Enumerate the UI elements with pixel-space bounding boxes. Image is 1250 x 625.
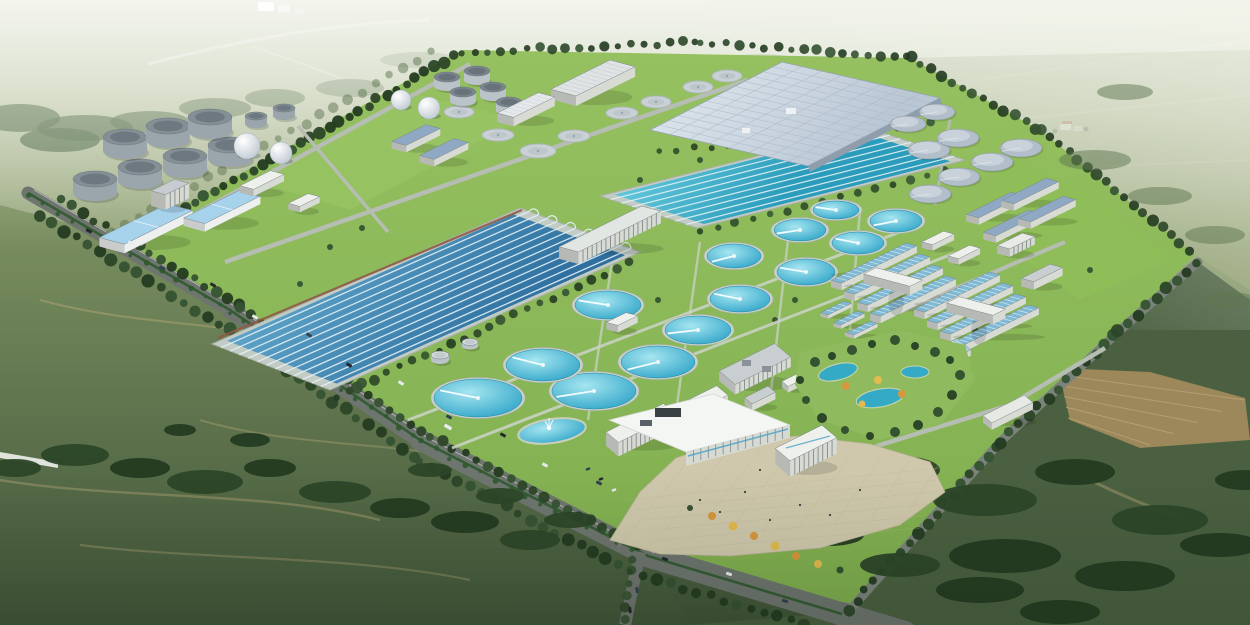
tree-icon xyxy=(275,135,282,142)
tree-clump xyxy=(1059,150,1131,170)
tree-icon xyxy=(734,40,744,50)
tree-icon xyxy=(641,41,648,48)
tree-icon xyxy=(851,50,859,58)
tree-clump xyxy=(1097,84,1153,100)
tree-icon xyxy=(327,244,333,250)
tree-icon xyxy=(57,195,65,203)
storage-tank xyxy=(273,104,297,122)
clarifier-hub xyxy=(738,297,742,301)
tree-icon xyxy=(524,305,531,312)
tree-icon xyxy=(524,45,531,52)
median-bush-icon xyxy=(369,405,374,410)
tree-icon xyxy=(774,42,784,52)
tree-icon xyxy=(177,268,189,280)
tree-icon xyxy=(1167,230,1176,239)
tree-icon xyxy=(180,299,188,307)
tree-icon xyxy=(222,293,234,305)
tree-icon xyxy=(1111,324,1124,337)
tree-icon xyxy=(240,172,248,180)
sphere-body xyxy=(234,133,260,159)
clarifier-hub xyxy=(696,328,700,332)
tank-top-inner xyxy=(468,68,486,75)
tree-icon xyxy=(211,286,223,298)
tree-icon xyxy=(1023,117,1031,125)
tree-icon xyxy=(73,232,81,240)
tree-icon xyxy=(359,225,365,231)
tree-icon xyxy=(1087,267,1093,273)
tree-icon xyxy=(165,290,177,302)
tree-icon xyxy=(1004,427,1013,436)
tree-icon xyxy=(1046,133,1055,142)
tree-icon xyxy=(141,274,154,287)
tree-icon xyxy=(838,49,847,58)
tank-top-inner xyxy=(153,121,183,132)
garden-pond xyxy=(901,366,929,378)
tree-icon xyxy=(191,274,198,281)
tree-icon xyxy=(1182,268,1192,278)
tree-icon xyxy=(34,210,46,222)
tree-icon xyxy=(376,427,387,438)
tree-icon xyxy=(119,261,130,272)
flat-tank-hub xyxy=(726,75,728,77)
rendering-stage xyxy=(0,0,1250,625)
open-clarifier xyxy=(829,230,887,255)
tree-icon xyxy=(1140,300,1150,310)
sphere-body xyxy=(270,142,292,164)
flat-covered-tank xyxy=(444,106,474,118)
tree-icon xyxy=(1147,215,1159,227)
tank-top-inner xyxy=(438,74,456,81)
tree-icon xyxy=(575,44,583,52)
tree-icon xyxy=(446,339,456,349)
tree-icon xyxy=(547,44,557,54)
tree-icon xyxy=(426,433,434,441)
garden-tree-icon xyxy=(842,382,850,390)
tree-icon xyxy=(995,437,1007,449)
tree-icon xyxy=(916,61,923,68)
tree-icon xyxy=(398,63,409,74)
tree-icon xyxy=(760,45,768,53)
tree-icon xyxy=(1158,221,1168,231)
tree-icon xyxy=(362,418,374,430)
tree-icon xyxy=(462,449,470,457)
median-bush-icon xyxy=(26,193,31,198)
tree-icon xyxy=(989,101,998,110)
tree-icon xyxy=(871,184,880,193)
tree-icon xyxy=(697,228,703,234)
tree-icon xyxy=(156,255,166,265)
tree-icon xyxy=(509,48,516,55)
tree-icon xyxy=(484,49,490,55)
tree-icon xyxy=(574,282,583,291)
clarifier-hub xyxy=(541,363,545,367)
median-bush-icon xyxy=(339,388,343,392)
median-bush-icon xyxy=(70,220,74,224)
clarifier-hub xyxy=(894,219,898,223)
garden-tree-icon xyxy=(913,420,923,430)
tree-icon xyxy=(715,225,721,231)
tree-icon xyxy=(249,167,258,176)
flat-covered-tank xyxy=(482,129,514,141)
tree-icon xyxy=(959,85,966,92)
tree-icon xyxy=(167,262,177,272)
tree-icon xyxy=(407,420,416,429)
tree-icon xyxy=(890,181,897,188)
garden-tree-icon xyxy=(796,376,804,384)
garden-tree-icon xyxy=(933,407,943,417)
tree-icon xyxy=(666,38,675,47)
storage-tank xyxy=(73,171,119,203)
tree-icon xyxy=(198,190,209,201)
sphere-body xyxy=(391,90,411,110)
tree-icon xyxy=(825,47,836,58)
open-clarifier xyxy=(774,257,838,286)
storage-tank xyxy=(450,87,478,108)
tree-icon xyxy=(1062,375,1070,383)
tank-top-inner xyxy=(454,89,472,96)
open-clarifier xyxy=(618,344,698,379)
tree-icon xyxy=(57,225,70,238)
tree-icon xyxy=(396,443,409,456)
open-clarifier xyxy=(704,242,764,269)
tree-icon xyxy=(612,264,622,274)
tree-icon xyxy=(202,311,213,322)
tree-icon xyxy=(767,211,773,217)
median-bush-icon xyxy=(418,438,423,443)
flat-tank-hub xyxy=(497,134,499,136)
tree-icon xyxy=(1133,310,1145,322)
tree-icon xyxy=(865,52,872,59)
rooftop-unit xyxy=(742,128,750,133)
tree-icon xyxy=(365,102,374,111)
tank-top-inner xyxy=(195,112,225,123)
tree-icon xyxy=(386,406,394,414)
storage-tank xyxy=(118,159,164,191)
flat-covered-tank xyxy=(520,144,556,158)
tree-icon xyxy=(314,109,324,119)
flat-tank-hub xyxy=(655,101,657,103)
median-bush-icon xyxy=(434,446,439,451)
tank-top-inner xyxy=(125,162,155,173)
tree-icon xyxy=(811,44,821,54)
tree-icon xyxy=(656,148,662,154)
tree-icon xyxy=(190,182,199,191)
open-clarifier xyxy=(431,377,525,418)
storage-tank xyxy=(188,109,234,141)
tree-icon xyxy=(328,102,339,113)
tree-icon xyxy=(799,44,809,54)
tree-icon xyxy=(1036,124,1047,135)
clarifier-hub xyxy=(856,241,860,245)
open-clarifier xyxy=(810,199,862,220)
tree-icon xyxy=(615,43,621,49)
tank-top-inner xyxy=(434,352,446,357)
flat-tank-hub xyxy=(537,150,539,152)
garden-tree-icon xyxy=(802,396,810,404)
tree-icon xyxy=(67,200,77,210)
tree-icon xyxy=(313,127,326,140)
tree-icon xyxy=(449,50,459,60)
tree-icon xyxy=(792,297,798,303)
atmospheric-haze-near xyxy=(0,470,1250,625)
tree-icon xyxy=(416,426,426,436)
garden-tree-icon xyxy=(859,401,866,408)
clarifier-hub xyxy=(592,389,596,393)
tree-icon xyxy=(215,321,223,329)
tree-icon xyxy=(287,127,295,135)
tree-icon xyxy=(691,143,698,150)
tree-icon xyxy=(948,79,956,87)
tree-icon xyxy=(346,113,354,121)
open-clarifier xyxy=(662,314,734,345)
flat-covered-tank xyxy=(712,70,742,82)
tree-icon xyxy=(496,47,505,56)
tree-icon xyxy=(974,461,984,471)
tree-icon xyxy=(509,309,518,318)
tree-icon xyxy=(473,329,481,337)
tank-top-inner xyxy=(277,105,292,110)
tree-icon xyxy=(750,216,756,222)
tree-icon xyxy=(332,115,344,127)
tree-icon xyxy=(788,47,794,53)
tree-clump xyxy=(230,433,270,447)
tree-icon xyxy=(157,283,166,292)
tree-icon xyxy=(472,49,479,56)
tree-icon xyxy=(189,306,200,317)
median-bush-icon xyxy=(128,254,132,258)
tree-icon xyxy=(1192,259,1201,268)
tree-icon xyxy=(1102,177,1111,186)
tree-icon xyxy=(967,88,977,98)
tree-icon xyxy=(891,52,899,60)
tree-icon xyxy=(655,297,661,303)
tree-icon xyxy=(697,157,703,163)
tree-icon xyxy=(191,199,199,207)
garden-tree-icon xyxy=(890,335,900,345)
tree-icon xyxy=(383,369,390,376)
tree-icon xyxy=(102,221,110,229)
tank-top-inner xyxy=(110,132,140,143)
tree-icon xyxy=(1054,385,1063,394)
clarifier-hub xyxy=(804,270,808,274)
garden-tree-icon xyxy=(930,347,940,357)
tree-icon xyxy=(386,436,395,445)
open-clarifier xyxy=(771,217,829,242)
tree-clump xyxy=(1128,187,1192,205)
tree-icon xyxy=(374,398,383,407)
tree-icon xyxy=(229,176,238,185)
clarifier-hub xyxy=(798,228,802,232)
garden-tree-icon xyxy=(911,342,919,350)
tree-icon xyxy=(800,202,808,210)
roof-skylight xyxy=(655,408,681,417)
flat-tank-hub xyxy=(458,111,460,113)
tree-icon xyxy=(104,253,117,266)
flat-covered-tank xyxy=(683,81,713,93)
tree-icon xyxy=(370,93,380,103)
tree-icon xyxy=(1091,168,1103,180)
garden-tree-icon xyxy=(890,427,900,437)
aerial-rendering xyxy=(0,0,1250,625)
garden-tree-icon xyxy=(841,426,849,434)
tree-icon xyxy=(1120,193,1128,201)
tree-icon xyxy=(637,177,643,183)
tree-icon xyxy=(924,173,930,179)
tree-icon xyxy=(1172,276,1182,286)
tree-icon xyxy=(1044,393,1056,405)
rooftop-unit xyxy=(786,108,796,114)
flat-tank-hub xyxy=(621,112,623,114)
tree-icon xyxy=(340,402,353,415)
tree-icon xyxy=(413,57,422,66)
open-clarifier xyxy=(867,208,925,233)
garden-tree-icon xyxy=(847,345,857,355)
tree-icon xyxy=(1174,238,1184,248)
tree-icon xyxy=(352,106,362,116)
median-bush-icon xyxy=(353,397,358,402)
median-bush-icon xyxy=(241,319,245,323)
tree-icon xyxy=(673,148,679,154)
garden-tree-icon xyxy=(866,432,874,440)
tree-icon xyxy=(77,207,89,219)
median-bush-icon xyxy=(173,277,179,283)
tree-icon xyxy=(653,42,660,49)
median-bush-icon xyxy=(228,312,232,316)
tree-icon xyxy=(369,375,380,386)
garden-tree-icon xyxy=(947,390,957,400)
garden-tree-icon xyxy=(828,352,836,360)
tree-icon xyxy=(210,187,219,196)
tree-clump xyxy=(41,444,109,466)
tree-icon xyxy=(297,281,303,287)
tree-icon xyxy=(364,391,373,400)
tree-clump xyxy=(1185,226,1245,244)
tree-icon xyxy=(749,42,755,48)
tree-icon xyxy=(302,119,312,129)
tree-icon xyxy=(438,57,450,69)
tree-icon xyxy=(627,40,635,48)
clarifier-hub xyxy=(606,303,610,307)
tree-icon xyxy=(372,79,380,87)
median-bush-icon xyxy=(189,286,194,291)
tree-icon xyxy=(458,50,464,56)
tree-icon xyxy=(586,275,596,285)
garden-tree-icon xyxy=(810,357,820,367)
clarifier-hub xyxy=(476,396,480,400)
garden-tree-icon xyxy=(955,370,965,380)
tree-icon xyxy=(89,218,97,226)
tree-icon xyxy=(854,189,862,197)
bottom-vignette xyxy=(0,470,1250,625)
tree-icon xyxy=(358,89,367,98)
tree-icon xyxy=(1055,140,1063,148)
tree-icon xyxy=(356,378,367,389)
tree-icon xyxy=(697,40,703,46)
tree-icon xyxy=(409,72,419,82)
tree-icon xyxy=(1185,247,1194,256)
tree-icon xyxy=(333,394,340,401)
tree-icon xyxy=(485,323,493,331)
tree-icon xyxy=(437,435,448,446)
tree-icon xyxy=(419,66,429,76)
tank-top-inner xyxy=(170,151,200,162)
tree-icon xyxy=(723,39,730,46)
clarifier-hub xyxy=(656,360,660,364)
garden-tree-icon xyxy=(874,376,882,384)
tree-icon xyxy=(352,414,360,422)
tree-icon xyxy=(980,95,987,102)
open-clarifier xyxy=(503,347,583,382)
tree-icon xyxy=(535,42,545,52)
tree-icon xyxy=(235,302,246,313)
tree-icon xyxy=(396,413,405,422)
tree-icon xyxy=(472,456,479,463)
roof-unit xyxy=(640,420,652,426)
storage-tank xyxy=(163,148,209,180)
tree-icon xyxy=(984,452,995,463)
tree-icon xyxy=(1110,186,1119,195)
tree-clump xyxy=(164,424,196,436)
median-bush-icon xyxy=(144,260,150,266)
tree-icon xyxy=(200,283,208,291)
median-bush-icon xyxy=(218,303,222,307)
median-bush-icon xyxy=(411,433,415,437)
tree-icon xyxy=(82,240,92,250)
flat-covered-tank xyxy=(558,130,590,142)
tree-icon xyxy=(906,175,915,184)
tank-top-inner xyxy=(484,84,502,91)
tree-icon xyxy=(588,45,595,52)
storage-tank xyxy=(245,112,269,130)
tree-icon xyxy=(549,295,557,303)
tree-icon xyxy=(906,51,917,62)
garden-tree-icon xyxy=(946,356,954,364)
tree-icon xyxy=(536,299,543,306)
tank-top-inner xyxy=(80,174,110,185)
garden-tree-icon xyxy=(898,390,906,398)
tree-icon xyxy=(560,43,570,53)
median-bush-icon xyxy=(462,462,468,468)
tree-icon xyxy=(1010,109,1021,120)
tree-icon xyxy=(601,272,609,280)
rooftop-unit xyxy=(742,360,751,366)
flat-tank-hub xyxy=(697,86,699,88)
clarifier-hub xyxy=(834,208,838,212)
tree-icon xyxy=(1160,282,1173,295)
open-clarifier xyxy=(707,284,773,313)
tree-icon xyxy=(678,36,688,46)
storage-tank xyxy=(103,129,149,161)
tree-icon xyxy=(562,289,569,296)
tree-icon xyxy=(1123,319,1133,329)
tree-icon xyxy=(709,145,715,151)
tree-icon xyxy=(396,363,402,369)
median-bush-icon xyxy=(204,295,207,298)
tree-icon xyxy=(427,47,434,54)
tree-icon xyxy=(342,94,353,105)
tree-icon xyxy=(130,266,142,278)
tree-icon xyxy=(316,390,325,399)
tree-icon xyxy=(709,41,715,47)
tree-icon xyxy=(997,106,1008,117)
tree-icon xyxy=(145,250,152,257)
tree-icon xyxy=(837,193,844,200)
garden-tree-icon xyxy=(868,340,876,348)
garden-tree-icon xyxy=(817,413,827,423)
median-bush-icon xyxy=(384,414,388,418)
median-bush-icon xyxy=(55,212,60,217)
tree-icon xyxy=(783,208,791,216)
